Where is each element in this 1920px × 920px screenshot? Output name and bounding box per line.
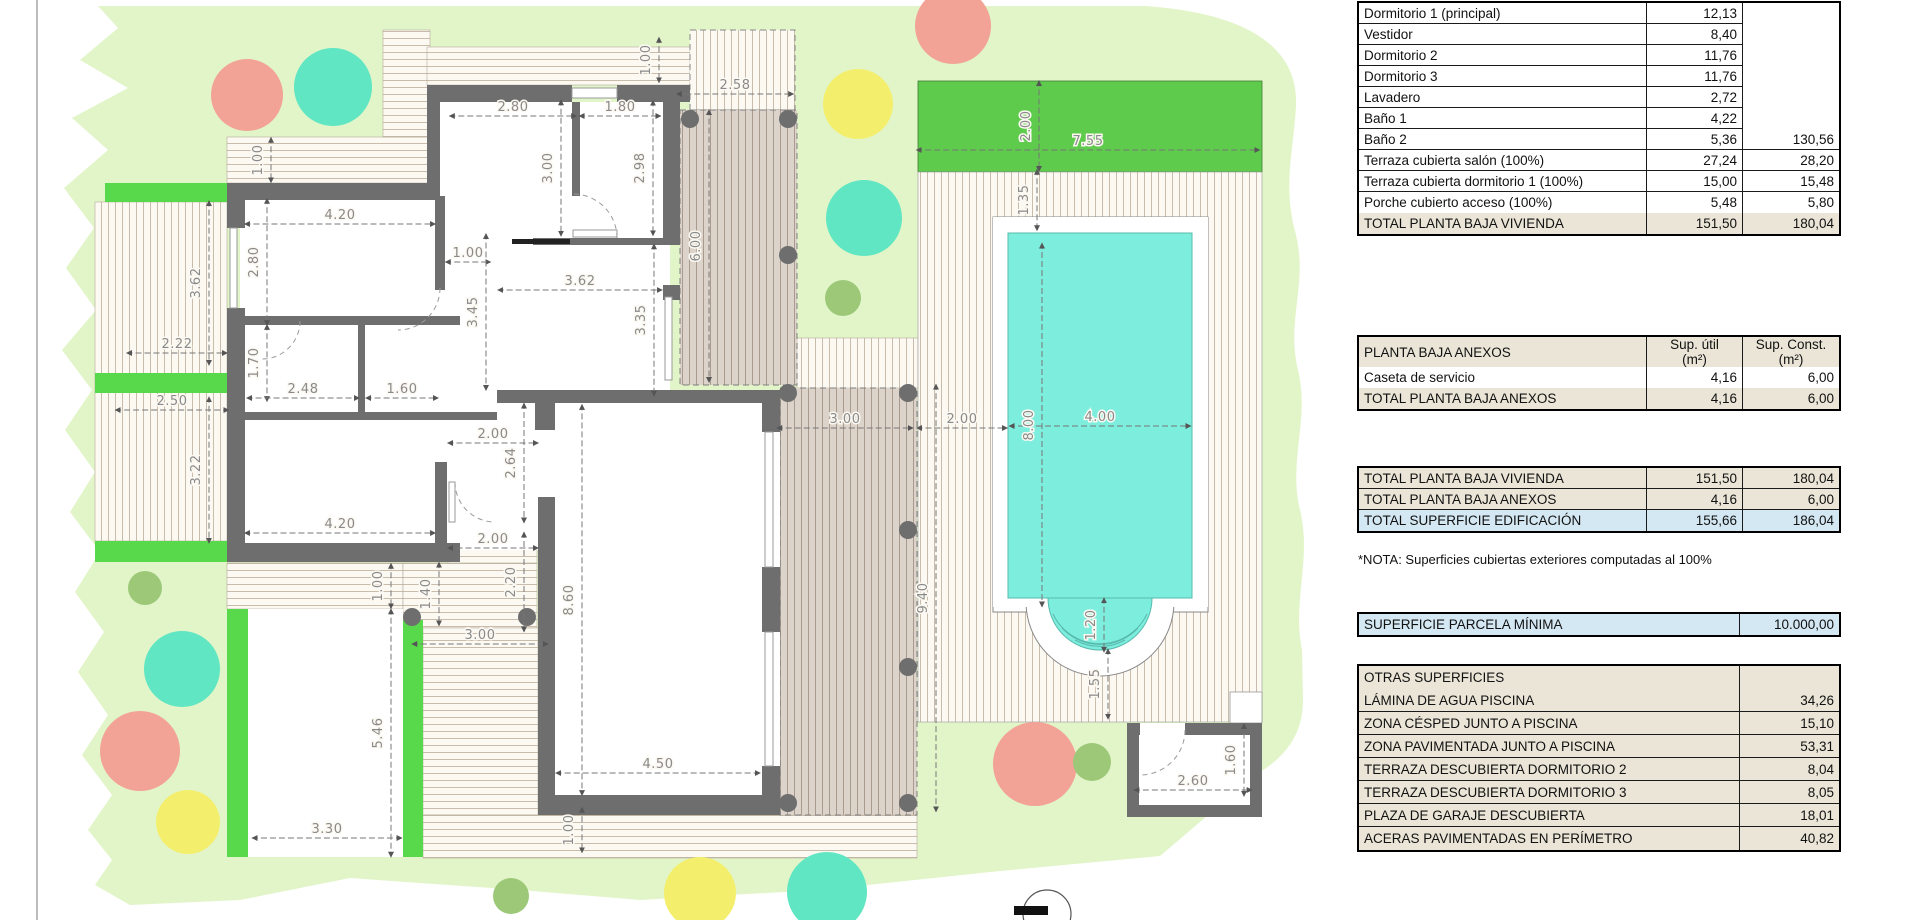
tree-icon [100, 711, 180, 791]
dimension-label: 2.00 [947, 412, 978, 427]
surface-value: 18,01 [1740, 804, 1839, 827]
door-leaf [573, 230, 617, 237]
dimension-label: 4.00 [1085, 410, 1116, 425]
sup-const-value [1743, 45, 1839, 66]
column-dot [681, 110, 699, 128]
table-row: Dormitorio 2 11,76 [1359, 45, 1839, 66]
surface-label: PLAZA DE GARAJE DESCUBIERTA [1359, 804, 1740, 827]
sup-util-value: 12,13 [1647, 3, 1743, 24]
table-total-row: TOTAL PLANTA BAJA VIVIENDA 151,50 180,04 [1359, 468, 1839, 489]
col-header-sup-util: Sup. útil(m²) [1647, 337, 1743, 367]
table-row: Terraza cubierta salón (100%) 27,24 28,2… [1359, 150, 1839, 171]
room-label: Vestidor [1359, 24, 1647, 45]
note-text: *NOTA: Superficies cubiertas exteriores … [1358, 552, 1712, 567]
total-label: TOTAL PLANTA BAJA VIVIENDA [1359, 213, 1647, 234]
dimension-label: 3.00 [830, 412, 861, 427]
dimension-label: 2.00 [1019, 111, 1034, 142]
sup-const-value [1743, 66, 1839, 87]
sup-util-value: 11,76 [1647, 45, 1743, 66]
floor-plan-drawing: 1.002.801.801.002.583.002.982.007.551.35… [0, 0, 1357, 920]
table-row: Baño 1 4,22 [1359, 108, 1839, 129]
surface-label: ACERAS PAVIMENTADAS EN PERÍMETRO [1359, 827, 1740, 850]
table-total-row: TOTAL SUPERFICIE EDIFICACIÓN 155,66 186,… [1359, 510, 1839, 531]
dimension-label: 3.62 [565, 274, 596, 289]
dimension-label: 1.70 [247, 348, 262, 379]
parcela-label: SUPERFICIE PARCELA MÍNIMA [1359, 614, 1740, 635]
otras-title-spacer [1740, 666, 1839, 689]
total-const: 180,04 [1743, 213, 1839, 234]
column-dot [779, 384, 797, 402]
room-label: Porche cubierto acceso (100%) [1359, 192, 1647, 213]
table-total-row: TOTAL PLANTA BAJA ANEXOS 4,16 6,00 [1359, 388, 1839, 409]
tree-icon [1073, 743, 1111, 781]
dimension-label: 7.55 [1073, 134, 1104, 149]
total-label: TOTAL PLANTA BAJA ANEXOS [1359, 388, 1647, 409]
table-row: Lavadero 2,72 [1359, 87, 1839, 108]
tree-icon [823, 69, 893, 139]
tree-icon [294, 48, 372, 126]
total-util: 151,50 [1647, 468, 1743, 489]
table-header-row: OTRAS SUPERFICIES [1359, 666, 1839, 689]
room-label: Terraza cubierta salón (100%) [1359, 150, 1647, 171]
total-label: TOTAL PLANTA BAJA ANEXOS [1359, 489, 1647, 510]
dimension-label: 2.22 [162, 337, 193, 352]
dimension-label: 1.80 [605, 100, 636, 115]
dimension-label: 3.00 [541, 153, 556, 184]
dimension-label: 3.62 [189, 268, 204, 299]
north-arrow-icon [1014, 890, 1071, 920]
dimension-label: 1.00 [639, 45, 654, 76]
table-row: SUPERFICIE PARCELA MÍNIMA 10.000,00 [1359, 614, 1839, 635]
dimension-label: 2.58 [720, 78, 751, 93]
surface-value: 53,31 [1740, 735, 1839, 758]
col-header-sup-const: Sup. Const.(m²) [1743, 337, 1839, 367]
sup-util-value: 8,40 [1647, 24, 1743, 45]
surface-label: TERRAZA DESCUBIERTA DORMITORIO 3 [1359, 781, 1740, 804]
door-leaf [449, 482, 455, 522]
sup-const-value: 6,00 [1743, 367, 1839, 388]
total-const: 6,00 [1743, 388, 1839, 409]
tree-icon [993, 722, 1077, 806]
tree-icon [156, 790, 220, 854]
dimension-label: 1.00 [562, 815, 577, 846]
dimension-label: 4.20 [325, 208, 356, 223]
tree-icon [211, 59, 283, 131]
table-row: ZONA PAVIMENTADA JUNTO A PISCINA 53,31 [1359, 735, 1839, 758]
surface-value: 15,10 [1740, 712, 1839, 735]
room-label: Lavadero [1359, 87, 1647, 108]
caseta-floor [1127, 723, 1262, 817]
sup-const-value [1743, 24, 1839, 45]
sup-util-value: 15,00 [1647, 171, 1743, 192]
table-planta-baja-vivienda: Dormitorio 1 (principal) 12,13 Vestidor … [1357, 1, 1841, 236]
pool-lawn-area [918, 81, 1262, 172]
table-row: Terraza cubierta dormitorio 1 (100%) 15,… [1359, 171, 1839, 192]
dimension-label: 2.80 [247, 247, 262, 278]
dimension-label: 4.50 [643, 757, 674, 772]
total-util: 155,66 [1647, 510, 1743, 531]
surface-value: 34,26 [1740, 689, 1839, 712]
tree-icon [825, 280, 861, 316]
table-row: ZONA CÉSPED JUNTO A PISCINA 15,10 [1359, 712, 1839, 735]
column-dot [899, 658, 917, 676]
column-dot [779, 794, 797, 812]
total-const: 6,00 [1743, 489, 1839, 510]
tree-icon [128, 571, 162, 605]
dimension-label: 2.64 [504, 448, 519, 479]
site-plan-sheet: 1.002.801.801.002.583.002.982.007.551.35… [0, 0, 1920, 920]
sup-util-value: 5,48 [1647, 192, 1743, 213]
caseta-deck-notch [1230, 692, 1262, 723]
room-label: Baño 2 [1359, 129, 1647, 150]
dimension-label: 1.60 [1224, 745, 1239, 776]
surface-value: 8,04 [1740, 758, 1839, 781]
terrace-covered-salon [780, 388, 917, 815]
terrace-uncovered-top [690, 30, 795, 110]
room-label: Dormitorio 3 [1359, 66, 1647, 87]
total-util: 4,16 [1647, 489, 1743, 510]
sup-const-value: 28,20 [1743, 150, 1839, 171]
sup-const-value: 5,80 [1743, 192, 1839, 213]
dimension-label: 2.50 [157, 394, 188, 409]
otras-title: OTRAS SUPERFICIES [1359, 666, 1740, 689]
dimension-label: 1.00 [453, 246, 484, 261]
sup-util-value: 4,16 [1647, 367, 1743, 388]
dimension-label: 1.55 [1088, 669, 1103, 700]
room-label: Baño 1 [1359, 108, 1647, 129]
dimension-label: 8.00 [1022, 410, 1037, 441]
sup-util-value: 2,72 [1647, 87, 1743, 108]
dimension-label: 1.20 [1084, 610, 1099, 641]
anexos-title: PLANTA BAJA ANEXOS [1359, 337, 1647, 367]
counter-line [512, 239, 570, 244]
tree-icon [826, 180, 902, 256]
room-label: Caseta de servicio [1359, 367, 1647, 388]
total-label: TOTAL PLANTA BAJA VIVIENDA [1359, 468, 1647, 489]
table-row: LÁMINA DE AGUA PISCINA 34,26 [1359, 689, 1839, 712]
table-total-row: TOTAL PLANTA BAJA VIVIENDA 151,50 180,04 [1359, 213, 1839, 234]
table-planta-baja-anexos: PLANTA BAJA ANEXOS Sup. útil(m²) Sup. Co… [1357, 335, 1841, 411]
parcela-value: 10.000,00 [1740, 614, 1839, 635]
room-label: Dormitorio 2 [1359, 45, 1647, 66]
room-label: Terraza cubierta dormitorio 1 (100%) [1359, 171, 1647, 192]
sup-util-value: 11,76 [1647, 66, 1743, 87]
dimension-label: 2.48 [288, 382, 319, 397]
dimension-label: 2.00 [478, 427, 509, 442]
surface-label: ZONA PAVIMENTADA JUNTO A PISCINA [1359, 735, 1740, 758]
dimension-label: 9.40 [916, 583, 931, 614]
total-label: TOTAL SUPERFICIE EDIFICACIÓN [1359, 510, 1647, 531]
column-dot [899, 384, 917, 402]
sup-util-value: 5,36 [1647, 129, 1743, 150]
surface-label: TERRAZA DESCUBIERTA DORMITORIO 2 [1359, 758, 1740, 781]
column-dot [518, 608, 536, 626]
dimension-label: 3.22 [189, 455, 204, 486]
sup-util-value: 4,22 [1647, 108, 1743, 129]
dimension-label: 2.98 [633, 153, 648, 184]
dimension-label: 2.60 [1178, 774, 1209, 789]
pool [993, 217, 1208, 676]
dimension-label: 1.60 [387, 382, 418, 397]
dimension-label: 3.45 [466, 297, 481, 328]
dimension-label: 1.40 [419, 579, 434, 610]
table-totales: TOTAL PLANTA BAJA VIVIENDA 151,50 180,04… [1357, 466, 1841, 533]
dimension-label: 2.20 [504, 567, 519, 598]
room-label: Dormitorio 1 (principal) [1359, 3, 1647, 24]
table-row: Caseta de servicio 4,16 6,00 [1359, 367, 1839, 388]
sup-const-value: 15,48 [1743, 171, 1839, 192]
dimension-label: 6.00 [689, 231, 704, 262]
dimension-label: 1.00 [371, 571, 386, 602]
dimension-label: 3.35 [634, 305, 649, 336]
total-const: 186,04 [1743, 510, 1839, 531]
surface-label: ZONA CÉSPED JUNTO A PISCINA [1359, 712, 1740, 735]
total-util: 151,50 [1647, 213, 1743, 234]
sup-const-value [1743, 87, 1839, 108]
table-row: Dormitorio 1 (principal) 12,13 [1359, 3, 1839, 24]
total-const: 180,04 [1743, 468, 1839, 489]
table-row: TERRAZA DESCUBIERTA DORMITORIO 3 8,05 [1359, 781, 1839, 804]
surface-value: 40,82 [1740, 827, 1839, 850]
dimension-label: 2.80 [498, 100, 529, 115]
column-dot [899, 521, 917, 539]
table-row: Porche cubierto acceso (100%) 5,48 5,80 [1359, 192, 1839, 213]
surface-label: LÁMINA DE AGUA PISCINA [1359, 689, 1740, 712]
sup-const-value: 130,56 [1743, 129, 1839, 150]
sup-const-value [1743, 108, 1839, 129]
column-dot [403, 608, 421, 626]
table-row: TERRAZA DESCUBIERTA DORMITORIO 2 8,04 [1359, 758, 1839, 781]
dimension-label: 3.30 [312, 822, 343, 837]
dimension-label: 2.00 [478, 532, 509, 547]
table-row: Dormitorio 3 11,76 [1359, 66, 1839, 87]
dimension-label: 1.00 [251, 145, 266, 176]
table-row: PLAZA DE GARAJE DESCUBIERTA 18,01 [1359, 804, 1839, 827]
sup-util-value: 27,24 [1647, 150, 1743, 171]
dimension-label: 3.00 [465, 628, 496, 643]
column-dot [779, 110, 797, 128]
table-row: Baño 2 5,36 130,56 [1359, 129, 1839, 150]
total-util: 4,16 [1647, 388, 1743, 409]
column-dot [899, 794, 917, 812]
sup-const-value [1743, 3, 1839, 24]
tree-icon [144, 631, 220, 707]
dimension-label: 5.46 [371, 718, 386, 749]
table-row: ACERAS PAVIMENTADAS EN PERÍMETRO 40,82 [1359, 827, 1839, 850]
column-dot [779, 246, 797, 264]
table-header-row: PLANTA BAJA ANEXOS Sup. útil(m²) Sup. Co… [1359, 337, 1839, 367]
surface-value: 8,05 [1740, 781, 1839, 804]
table-otras-superficies: OTRAS SUPERFICIES LÁMINA DE AGUA PISCINA… [1357, 664, 1841, 852]
dimension-label: 1.35 [1017, 185, 1032, 216]
dimension-label: 8.60 [562, 585, 577, 616]
table-parcela-minima: SUPERFICIE PARCELA MÍNIMA 10.000,00 [1357, 612, 1841, 637]
table-row: Vestidor 8,40 [1359, 24, 1839, 45]
dimension-label: 4.20 [325, 517, 356, 532]
tree-icon [493, 878, 529, 914]
table-total-row: TOTAL PLANTA BAJA ANEXOS 4,16 6,00 [1359, 489, 1839, 510]
